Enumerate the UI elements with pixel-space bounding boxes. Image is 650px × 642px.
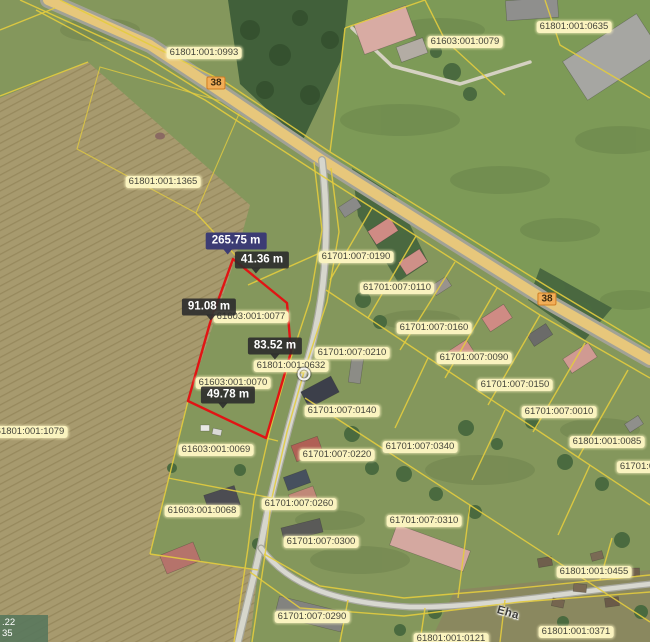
coordinate-line-1: .22 bbox=[2, 617, 42, 628]
aerial-basemap bbox=[0, 0, 650, 642]
terrain bbox=[0, 0, 650, 642]
coordinate-line-2: 35 bbox=[2, 628, 42, 639]
coordinate-readout: .22 35 bbox=[0, 615, 48, 642]
map-canvas[interactable]: 61801:001:099361603:001:007961801:001:06… bbox=[0, 0, 650, 642]
